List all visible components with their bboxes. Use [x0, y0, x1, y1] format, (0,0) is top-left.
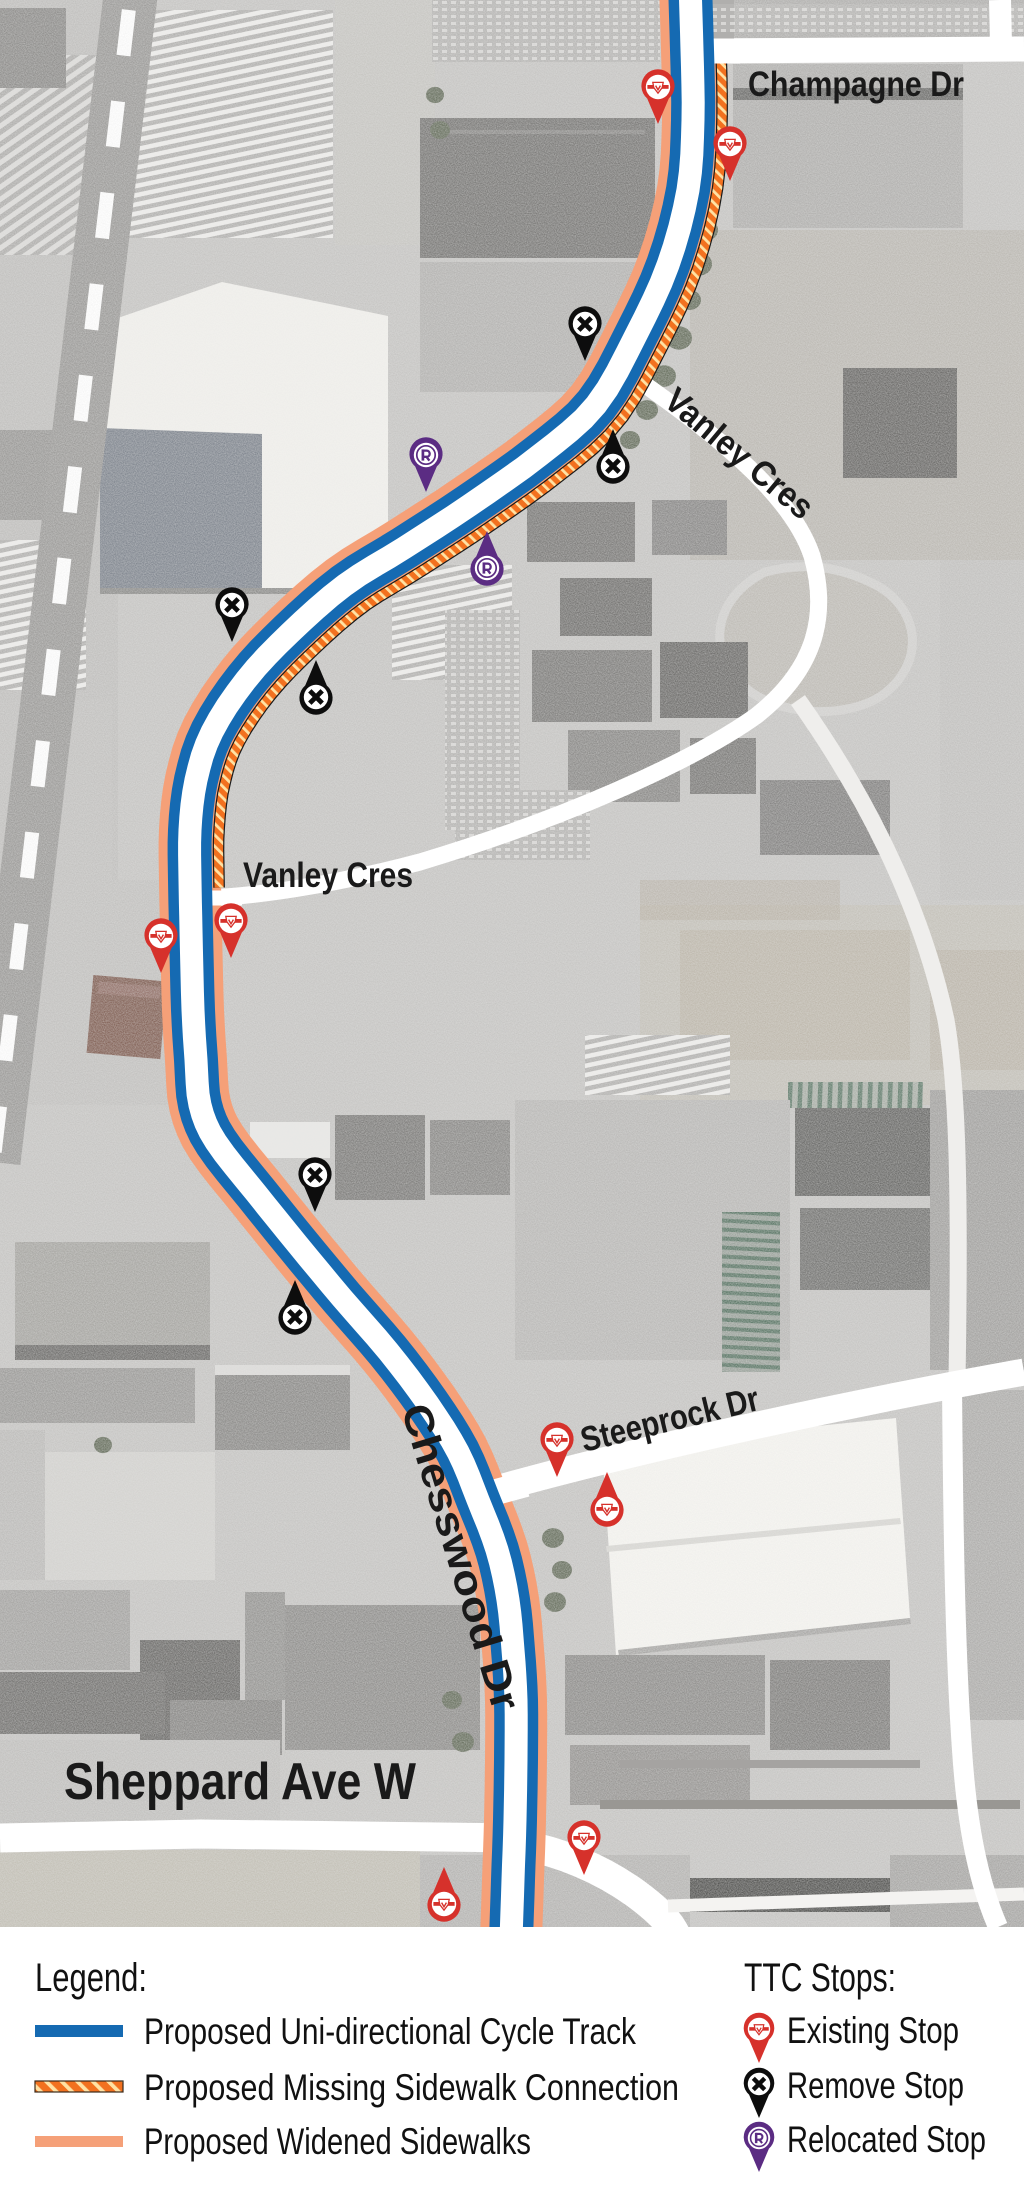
svg-text:Proposed Uni-directional Cycle: Proposed Uni-directional Cycle Track: [144, 2011, 636, 2052]
svg-text:Existing Stop: Existing Stop: [787, 2010, 959, 2051]
svg-text:Remove Stop: Remove Stop: [787, 2065, 964, 2106]
svg-text:Vanley Cres: Vanley Cres: [243, 856, 413, 895]
svg-text:TTC Stops:: TTC Stops:: [744, 1956, 896, 2000]
svg-text:Sheppard Ave W: Sheppard Ave W: [64, 1753, 417, 1811]
svg-text:Proposed Widened Sidewalks: Proposed Widened Sidewalks: [144, 2121, 531, 2162]
svg-text:Relocated Stop: Relocated Stop: [787, 2119, 986, 2160]
svg-text:Legend:: Legend:: [35, 1956, 147, 2000]
svg-text:Champagne Dr: Champagne Dr: [748, 65, 964, 104]
svg-text:Proposed Missing Sidewalk Conn: Proposed Missing Sidewalk Connection: [144, 2067, 679, 2108]
